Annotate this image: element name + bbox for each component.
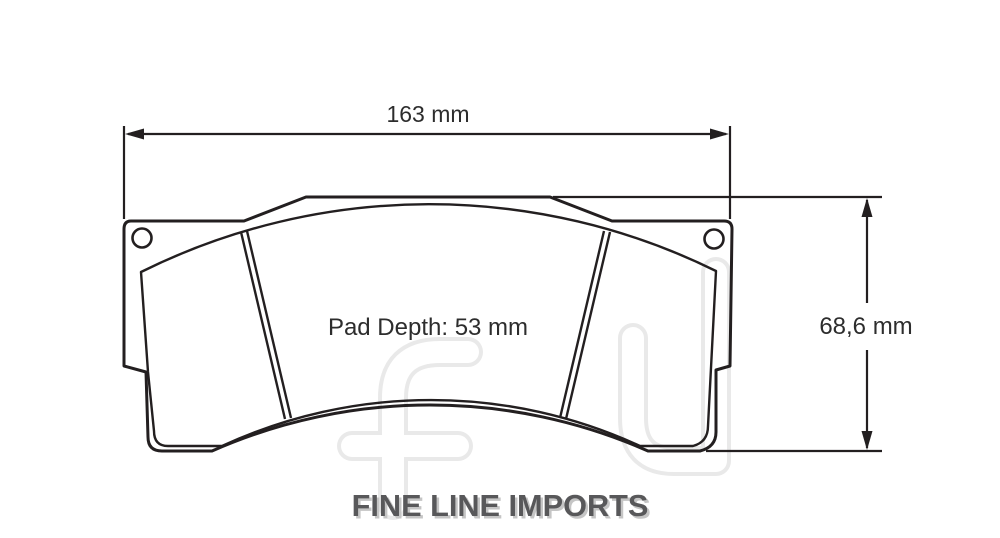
technical-drawing-page: 163 mm 68,6 mm Pad Depth: 53 mm FINE LIN… [0, 0, 1000, 538]
width-dimension-label: 163 mm [386, 101, 469, 127]
fli-watermark [352, 272, 716, 505]
right-mounting-hole [705, 230, 724, 249]
right-slot-line-1 [560, 231, 604, 418]
brake-pad-diagram: 163 mm 68,6 mm Pad Depth: 53 mm [0, 0, 1000, 538]
pad-depth-label: Pad Depth: 53 mm [328, 314, 528, 341]
brand-logo-text: FINE LINE IMPORTS [352, 488, 649, 523]
width-dimension: 163 mm [124, 101, 730, 219]
brand-logo: FINE LINE IMPORTS [5, 488, 995, 524]
dimension-arrowhead-up [862, 198, 873, 217]
dimension-arrowhead-right [710, 129, 729, 140]
watermark-letter-f [352, 352, 468, 505]
left-slot-line-2 [247, 231, 291, 418]
right-slot-line-2 [566, 232, 610, 419]
left-mounting-hole [133, 229, 152, 248]
height-dimension-label: 68,6 mm [819, 313, 912, 340]
left-slot-line-1 [241, 232, 285, 419]
dimension-arrowhead-left [125, 129, 144, 140]
dimension-arrowhead-down [862, 431, 873, 450]
